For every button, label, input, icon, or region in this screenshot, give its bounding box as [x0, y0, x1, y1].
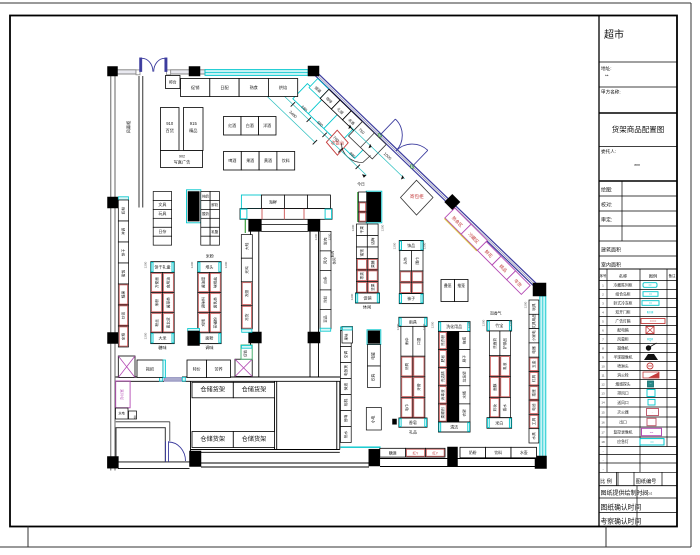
svg-text:围巾: 围巾	[414, 257, 419, 265]
svg-text:~: ~	[649, 382, 651, 386]
svg-text:14: 14	[601, 401, 605, 405]
svg-text:1200: 1200	[144, 332, 148, 339]
svg-text:洋酒: 洋酒	[263, 122, 271, 128]
svg-text:雨具: 雨具	[409, 318, 417, 324]
svg-text:调味: 调味	[205, 344, 214, 351]
svg-text:推笼: 推笼	[457, 283, 465, 288]
svg-text:大米: 大米	[159, 335, 167, 341]
svg-text:摄像机: 摄像机	[617, 346, 629, 351]
svg-text:面粉: 面粉	[205, 335, 213, 341]
svg-text:礼品: 礼品	[409, 429, 417, 435]
svg-text:红Y: 红Y	[413, 451, 419, 456]
svg-text:915: 915	[190, 121, 198, 126]
svg-text:啤酒: 啤酒	[228, 157, 236, 163]
svg-text:香皂: 香皂	[409, 419, 417, 425]
svg-text:水壶: 水壶	[520, 450, 528, 455]
svg-text:糖酒: 糖酒	[389, 451, 397, 456]
svg-text:食用油: 食用油	[165, 277, 170, 288]
svg-text:鸡精: 鸡精	[201, 319, 206, 327]
svg-text:18: 18	[601, 440, 605, 444]
svg-text:烘焙: 烘焙	[279, 84, 287, 91]
svg-text:清洁: 清洁	[450, 424, 458, 430]
svg-text:话梅: 话梅	[370, 237, 375, 245]
svg-text:17: 17	[601, 430, 605, 434]
svg-text:写真广告: 写真广告	[174, 159, 191, 166]
svg-text:绘图:: 绘图:	[601, 187, 612, 194]
svg-text:果酒: 果酒	[246, 157, 254, 163]
svg-text:拖把: 拖把	[462, 337, 467, 345]
svg-text:====: ====	[650, 319, 657, 323]
svg-text:米白: 米白	[495, 419, 503, 425]
svg-text:饮料: 饮料	[282, 157, 290, 163]
svg-text:1200: 1200	[431, 321, 435, 328]
svg-text:炊具: 炊具	[371, 374, 376, 382]
svg-text:洗化用品: 洗化用品	[446, 323, 462, 329]
svg-text:微波: 微波	[343, 383, 348, 391]
svg-text:饰品: 饰品	[407, 242, 415, 248]
svg-text:插座: 插座	[531, 389, 536, 397]
svg-text:比 例: 比 例	[600, 477, 612, 485]
svg-text:冻翅: 冻翅	[244, 290, 249, 298]
svg-text:奶粉: 奶粉	[121, 207, 126, 215]
svg-text:相机: 相机	[343, 399, 348, 407]
svg-text:蜜饯: 蜜饯	[359, 249, 364, 257]
svg-text:==: ==	[650, 430, 654, 434]
svg-text:1200: 1200	[144, 261, 148, 268]
svg-text:电器: 电器	[531, 346, 536, 354]
svg-text:1200: 1200	[524, 301, 528, 308]
svg-text:冷藏陈列柜: 冷藏陈列柜	[614, 283, 633, 288]
svg-text:表: 表	[133, 414, 136, 419]
svg-text:910: 910	[166, 121, 174, 126]
svg-text:工具: 工具	[531, 418, 536, 426]
svg-text:配电箱: 配电箱	[617, 328, 629, 333]
svg-text:图例: 图例	[649, 273, 657, 280]
svg-text:牙刷: 牙刷	[404, 363, 409, 371]
svg-text:乳液: 乳液	[502, 362, 507, 370]
svg-text:冻货: 冻货	[244, 313, 249, 321]
svg-text:豆品: 豆品	[323, 315, 328, 323]
svg-text:902: 902	[179, 155, 185, 159]
svg-text:灭火器: 灭火器	[617, 410, 629, 415]
svg-text:竹宝: 竹宝	[495, 322, 503, 328]
svg-text:炒货: 炒货	[121, 312, 126, 320]
svg-text:==: ==	[648, 284, 652, 287]
svg-text:地址:: 地址:	[601, 65, 611, 71]
svg-text:促销: 促销	[364, 295, 372, 301]
svg-text:白条: 白条	[323, 276, 328, 284]
svg-text:1200: 1200	[423, 242, 427, 249]
svg-text:海鲜: 海鲜	[269, 198, 277, 204]
svg-text:雨伞: 雨伞	[404, 337, 409, 345]
svg-text:特价: 特价	[193, 366, 201, 372]
svg-text:风幕柜: 风幕柜	[125, 121, 132, 134]
svg-text:电饭煲: 电饭煲	[343, 365, 348, 376]
svg-text:15: 15	[601, 410, 605, 414]
svg-text:风冷: 风冷	[323, 257, 328, 265]
svg-text:双开门柜: 双开门柜	[615, 310, 630, 315]
svg-text:电池: 电池	[531, 403, 536, 411]
svg-text:1200: 1200	[224, 261, 228, 268]
svg-text:洗面奶: 洗面奶	[492, 338, 497, 349]
svg-text:口罩: 口罩	[416, 337, 421, 345]
svg-text:仓储货架: 仓储货架	[242, 435, 267, 443]
svg-text:监控录像机: 监控录像机	[614, 430, 633, 435]
svg-text:图纸确认时间: 图纸确认时间	[601, 503, 642, 512]
svg-text:鲜肉: 鲜肉	[330, 251, 335, 257]
svg-text:出口: 出口	[619, 420, 627, 425]
svg-text:1200: 1200	[351, 224, 355, 231]
svg-text:洗衣粉: 洗衣粉	[440, 335, 445, 346]
svg-text:排风口: 排风口	[617, 391, 629, 396]
svg-text:称台: 称台	[169, 80, 177, 85]
svg-text:五金: 五金	[531, 360, 536, 368]
svg-text:日杂: 日杂	[158, 228, 166, 234]
svg-text:1200: 1200	[393, 242, 397, 249]
svg-text:灯具: 灯具	[531, 375, 536, 383]
svg-text:玩具: 玩具	[158, 210, 166, 216]
svg-text:香水: 香水	[502, 404, 507, 412]
svg-text:仓储货架: 仓储货架	[200, 386, 225, 394]
svg-text:1200: 1200	[467, 321, 471, 328]
svg-text:1200: 1200	[350, 293, 354, 300]
svg-text:#Q#: #Q#	[647, 338, 653, 342]
svg-text:今日: 今日	[357, 182, 365, 187]
svg-text:1200: 1200	[422, 323, 426, 330]
svg-text:红Y: 红Y	[432, 451, 438, 456]
svg-text:乳酪: 乳酪	[211, 229, 218, 234]
svg-text:加香气: 加香气	[490, 311, 502, 316]
svg-text:1200: 1200	[482, 319, 486, 326]
svg-text:果味: 果味	[344, 333, 349, 340]
svg-text:消火栓: 消火栓	[617, 373, 629, 378]
svg-text:16: 16	[601, 420, 605, 424]
svg-text:空调: 空调	[343, 351, 348, 359]
svg-text:消毒液: 消毒液	[440, 389, 445, 400]
svg-text:图纸编号: 图纸编号	[636, 477, 657, 485]
svg-text:花椒粉: 花椒粉	[212, 317, 217, 328]
svg-text:1200: 1200	[190, 261, 194, 268]
svg-text:精品: 精品	[189, 127, 197, 134]
svg-text:垃圾袋: 垃圾袋	[462, 371, 467, 382]
svg-text:送风口: 送风口	[617, 400, 629, 405]
svg-text:办公室: 办公室	[119, 389, 124, 400]
svg-text:建筑面积: 建筑面积	[601, 247, 621, 254]
svg-text:***: ***	[634, 164, 640, 170]
svg-text:方便面: 方便面	[154, 277, 159, 288]
svg-text:糖味: 糖味	[158, 344, 167, 351]
svg-text:10: 10	[601, 364, 605, 368]
svg-text:衣架: 衣架	[462, 409, 467, 417]
svg-text:柔顺剂: 柔顺剂	[440, 407, 445, 418]
svg-text:纯奶: 纯奶	[202, 193, 209, 198]
svg-text:超市: 超市	[604, 28, 624, 41]
svg-text:南北货: 南北货	[165, 317, 170, 328]
svg-text:米粉: 米粉	[154, 299, 159, 307]
svg-text:光鸡: 光鸡	[244, 266, 249, 274]
svg-text:干果: 干果	[359, 226, 364, 234]
svg-text:水桶: 水桶	[462, 391, 467, 399]
svg-text:==: ==	[649, 302, 653, 305]
svg-text:鲜奶: 鲜奶	[211, 202, 218, 207]
svg-text:黄酒: 黄酒	[264, 157, 272, 163]
svg-text:米粉: 米粉	[206, 252, 214, 258]
svg-text:名称: 名称	[619, 273, 627, 280]
svg-text:酸奶: 酸奶	[202, 211, 209, 216]
svg-text:洗洁精: 洗洁精	[440, 371, 445, 382]
svg-text:M M: M M	[647, 311, 654, 315]
svg-text:13: 13	[601, 391, 605, 395]
svg-text:广告灯箱: 广告灯箱	[615, 319, 630, 324]
svg-text:音响: 音响	[343, 415, 348, 423]
svg-text:水具: 水具	[531, 432, 536, 440]
svg-text:12: 12	[601, 382, 605, 386]
svg-text:甲方名称:: 甲方名称:	[601, 89, 621, 96]
svg-text:..: ..	[652, 410, 654, 414]
svg-text:熟食: 熟食	[250, 84, 259, 91]
svg-text:文具: 文具	[158, 201, 166, 207]
svg-text:风幕柜: 风幕柜	[617, 337, 629, 342]
svg-text:休闲: 休闲	[363, 304, 371, 311]
svg-text:1200: 1200	[396, 323, 400, 330]
svg-text:热水: 热水	[343, 431, 348, 439]
svg-text:寄包柜: 寄包柜	[410, 193, 424, 200]
svg-text:考察确认时间: 考察确认时间	[601, 517, 642, 526]
svg-text:半球摄像机: 半球摄像机	[614, 355, 633, 360]
svg-text:备注: 备注	[669, 273, 676, 278]
svg-text:牙膏: 牙膏	[416, 383, 421, 391]
svg-text:饼干礼盒: 饼干礼盒	[155, 264, 171, 270]
svg-text:糖果: 糖果	[121, 291, 126, 299]
svg-text:校对:: 校对:	[601, 202, 612, 209]
svg-text:红酒: 红酒	[228, 122, 236, 128]
svg-text:坚果: 坚果	[370, 283, 375, 291]
svg-text:果脯: 果脯	[370, 260, 375, 268]
svg-text:冲调: 冲调	[121, 228, 126, 236]
svg-text:小家电: 小家电	[531, 330, 536, 341]
svg-text:肥皂: 肥皂	[440, 355, 445, 363]
svg-text:应急灯: 应急灯	[617, 439, 629, 444]
svg-text:1200: 1200	[314, 233, 318, 240]
svg-text:彩妆: 彩妆	[492, 404, 497, 412]
svg-text:促销: 促销	[191, 84, 199, 91]
svg-text:序号: 序号	[600, 273, 607, 278]
svg-text:杂粮: 杂粮	[121, 333, 126, 341]
svg-text:仓储货架: 仓储货架	[200, 435, 225, 443]
svg-text:袜子: 袜子	[407, 295, 415, 301]
svg-text:货架商品配置图: 货架商品配置图	[612, 124, 665, 134]
svg-text:1200: 1200	[509, 319, 513, 326]
svg-text:味精盐: 味精盐	[212, 277, 217, 288]
svg-text:百货: 百货	[166, 127, 174, 134]
svg-text:小电: 小电	[371, 416, 376, 424]
svg-text:卧式冷冻柜: 卧式冷冻柜	[614, 301, 633, 306]
svg-text:仓储货架: 仓储货架	[242, 386, 267, 394]
svg-text:11: 11	[601, 373, 604, 377]
svg-text:毛巾: 毛巾	[404, 404, 409, 412]
svg-text:**: **	[605, 74, 609, 79]
svg-text:酱油醋: 酱油醋	[201, 277, 206, 288]
svg-text:冷鲜: 冷鲜	[323, 296, 328, 304]
svg-text:苦荞: 苦荞	[215, 366, 223, 372]
svg-text:喷淋头: 喷淋头	[617, 364, 629, 369]
svg-text:护肤品: 护肤品	[502, 338, 507, 349]
svg-text:堆头: 堆头	[205, 264, 213, 270]
svg-text:大蛙: 大蛙	[244, 242, 249, 250]
svg-text:休闲: 休闲	[332, 257, 337, 264]
svg-text:==: ==	[649, 293, 653, 296]
svg-text:2004: 2004	[642, 491, 653, 497]
svg-text:刷子: 刷子	[462, 355, 467, 363]
svg-text:促销: 促销	[243, 350, 248, 357]
svg-text:奶粉: 奶粉	[469, 450, 477, 455]
svg-text:蜜饯: 蜜饯	[121, 270, 126, 278]
svg-text:叠笼: 叠笼	[444, 283, 452, 288]
svg-text:组合岛柜: 组合岛柜	[615, 292, 630, 297]
svg-text:水电: 水电	[118, 411, 125, 416]
svg-text:委托人:: 委托人:	[601, 148, 616, 154]
svg-text:烟感探头: 烟感探头	[615, 382, 630, 387]
svg-text:枣类: 枣类	[359, 272, 364, 280]
svg-text:玩具: 玩具	[531, 303, 536, 311]
svg-text:调味料: 调味料	[201, 297, 206, 308]
svg-text:饼干: 饼干	[121, 249, 126, 257]
svg-text:==: ==	[650, 440, 654, 444]
svg-text:文具用品: 文具用品	[531, 314, 536, 329]
svg-text:酱菜类: 酱菜类	[165, 297, 170, 308]
svg-text:1200: 1200	[328, 233, 332, 240]
svg-text:审定:: 审定:	[601, 217, 612, 224]
svg-text:电磁: 电磁	[371, 352, 376, 360]
svg-text:面膜: 面膜	[492, 383, 497, 391]
svg-text:室内面积: 室内面积	[601, 262, 621, 269]
svg-text:头饰: 头饰	[403, 257, 408, 265]
svg-text:白酒: 白酒	[246, 122, 254, 128]
svg-text:饮料: 饮料	[494, 450, 502, 455]
svg-text:拖把: 拖把	[146, 366, 154, 372]
svg-text:腐乳类: 腐乳类	[212, 297, 217, 308]
svg-text:1200: 1200	[381, 224, 385, 231]
svg-text:粉丝: 粉丝	[154, 319, 159, 327]
